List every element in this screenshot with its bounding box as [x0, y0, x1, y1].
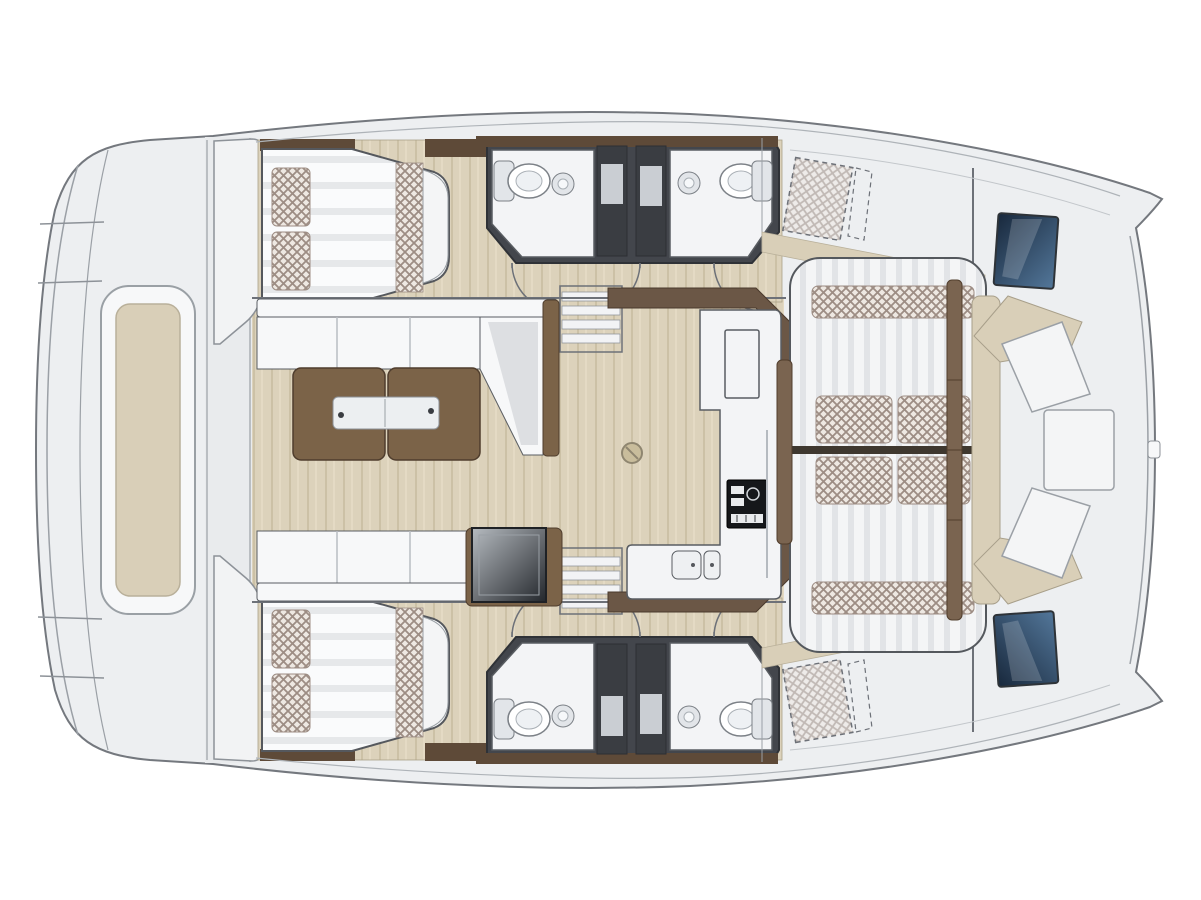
stove-burner — [731, 498, 744, 506]
lounge-cushion — [816, 457, 892, 504]
forward-cockpit-lounge — [777, 258, 988, 652]
lounge-cushion — [816, 396, 892, 443]
galley-stove — [727, 480, 767, 528]
table-tray-latch — [428, 408, 434, 414]
stove-knob-strip — [731, 514, 763, 523]
catamaran-floor-plan — [0, 0, 1201, 900]
bow-cleat — [1148, 441, 1160, 458]
stove-burner — [731, 486, 744, 494]
sink-drain — [691, 563, 695, 567]
platform-bench-cushion — [116, 304, 180, 596]
faucet — [710, 563, 714, 567]
lounge-side-rail-left — [777, 360, 792, 544]
sofa-backrest — [257, 299, 557, 317]
bench-seat-center — [1044, 410, 1114, 490]
sink-bowl-main — [672, 551, 701, 579]
galley-sink — [672, 551, 720, 579]
sofa-seat — [257, 317, 480, 369]
table-tray-latch — [338, 412, 344, 418]
table-center-tray — [333, 397, 439, 429]
sofa-armrest-cabinet — [543, 300, 559, 456]
nav-table-top — [472, 528, 546, 602]
aft-platform-bench — [101, 286, 195, 614]
salon-sofa-aft — [257, 528, 562, 606]
floor-plan-page — [0, 0, 1201, 900]
sofa-seat — [257, 531, 480, 583]
